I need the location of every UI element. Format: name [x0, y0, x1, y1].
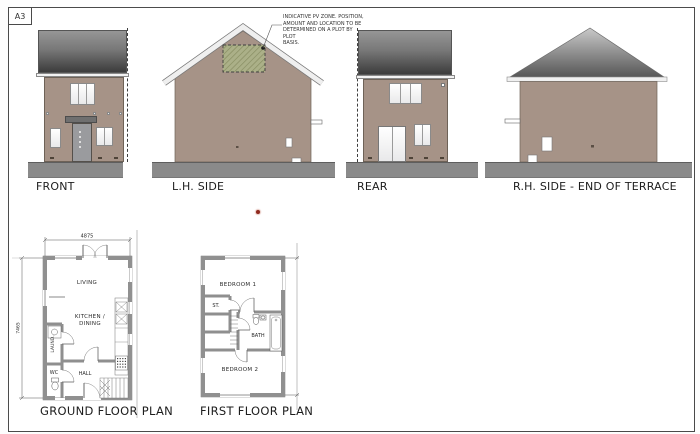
bedroom1-label: BEDROOM 1: [220, 282, 257, 288]
front-door: [72, 123, 92, 162]
window-pane: [79, 84, 87, 104]
ground-plan-width-dim-text: 4875: [81, 234, 94, 240]
rear-elevation-label: REAR: [357, 180, 388, 193]
rear-airbrick: [440, 157, 444, 159]
front-door-canopy: [65, 116, 97, 123]
kitchen-counter: [115, 298, 128, 375]
kitchen-label-line2: DINING: [79, 321, 101, 327]
rear-upper-window: [389, 83, 422, 104]
front-ground-line: [28, 162, 123, 178]
front-elevation-label: FRONT: [36, 180, 75, 193]
pv-annotation-line: BASIS.: [283, 40, 365, 47]
front-wall-light: [107, 112, 110, 115]
front-party-wall-line: [127, 28, 128, 162]
rear-vent-box: [441, 83, 445, 87]
rear-airbrick: [409, 157, 413, 159]
lh-ground-line: [152, 162, 335, 178]
ground-stairs: [100, 378, 128, 398]
bath-label: BATH: [251, 333, 265, 339]
door-leaf: [393, 127, 406, 161]
sheet-format-label: A3: [15, 12, 26, 21]
rh-side-elevation-label: R.H. SIDE - END OF TERRACE: [513, 180, 677, 193]
bedroom2-label: BEDROOM 2: [222, 367, 259, 373]
door-leaf: [379, 127, 393, 161]
front-upper-window: [70, 83, 95, 105]
ground-plan-width-dimension: 4875: [43, 234, 132, 257]
front-airbrick: [114, 157, 118, 159]
window-pane: [423, 125, 430, 145]
rear-right-window: [414, 124, 431, 146]
front-left-window: [50, 128, 61, 148]
kitchen-label-line1: KITCHEN /: [75, 314, 105, 320]
window-pane: [87, 84, 94, 104]
window-pane: [411, 84, 421, 103]
lh-meter-box: [286, 138, 292, 147]
window-pane: [401, 84, 412, 103]
rh-rainwater-pipe: [505, 119, 520, 123]
laundry-label: LAUND.: [50, 335, 56, 352]
rear-french-doors: [378, 126, 406, 162]
wc-label: WC: [50, 370, 59, 376]
first-floor-plan-drawing: BEDROOM 1 ST. BATH BEDROOM 2: [190, 238, 310, 420]
rear-airbrick: [424, 157, 428, 159]
lh-wall-vent: [236, 146, 239, 148]
rh-meter-box: [542, 137, 552, 151]
rh-ground-line: [485, 162, 692, 178]
pv-annotation: INDICATIVE PV ZONE. POSITION, AMOUNT AND…: [283, 14, 365, 47]
window-pane: [97, 128, 105, 145]
window-pane: [390, 84, 401, 103]
rh-hip-roof: [510, 28, 664, 77]
kitchen-hob: [116, 356, 128, 370]
store-label: ST.: [212, 303, 220, 309]
sheet-format-badge: A3: [8, 7, 32, 25]
ground-floor-plan-drawing: 4875 7465: [10, 228, 160, 420]
front-wall-light: [119, 112, 122, 115]
front-airbrick: [50, 157, 54, 159]
front-wall-light: [93, 112, 96, 115]
window-pane: [415, 125, 423, 145]
drawing-sheet-page: { "sheet": { "format": "A3" }, "pv_annot…: [0, 0, 700, 434]
pv-annotation-line: INDICATIVE PV ZONE. POSITION,: [283, 14, 365, 21]
first-floor-plan-label: FIRST FLOOR PLAN: [200, 404, 313, 418]
hall-label: HALL: [79, 371, 92, 377]
lh-side-elevation-label: L.H. SIDE: [172, 180, 224, 193]
ground-plan-depth-dim-text: 7465: [16, 322, 22, 334]
lh-flue-pipe: [311, 120, 322, 124]
front-wall-light: [46, 112, 49, 115]
front-airbrick: [98, 157, 102, 159]
ground-plan-depth-dimension: 7465: [16, 256, 44, 400]
red-marker-dot: [256, 210, 260, 214]
front-roof: [38, 30, 127, 73]
bath-basin: [260, 315, 266, 320]
rh-fascia: [507, 77, 667, 82]
rh-wall: [520, 82, 657, 163]
rear-ground-line: [346, 162, 478, 178]
window-pane: [105, 128, 112, 145]
living-room-label: LIVING: [77, 280, 97, 286]
rh-side-drawing: [480, 20, 695, 180]
front-right-window: [96, 127, 113, 146]
window-pane: [51, 129, 60, 147]
bath-toilet: [253, 315, 259, 325]
rear-airbrick: [368, 157, 372, 159]
rear-roof: [358, 30, 452, 75]
wc-toilet: [52, 378, 59, 390]
bathtub: [270, 315, 282, 351]
window-pane: [71, 84, 79, 104]
ground-floor-plan-label: GROUND FLOOR PLAN: [40, 404, 173, 418]
pv-annotation-line: DETERMINED ON A PLOT BY PLOT: [283, 27, 365, 40]
rh-wall-vent: [591, 145, 594, 148]
